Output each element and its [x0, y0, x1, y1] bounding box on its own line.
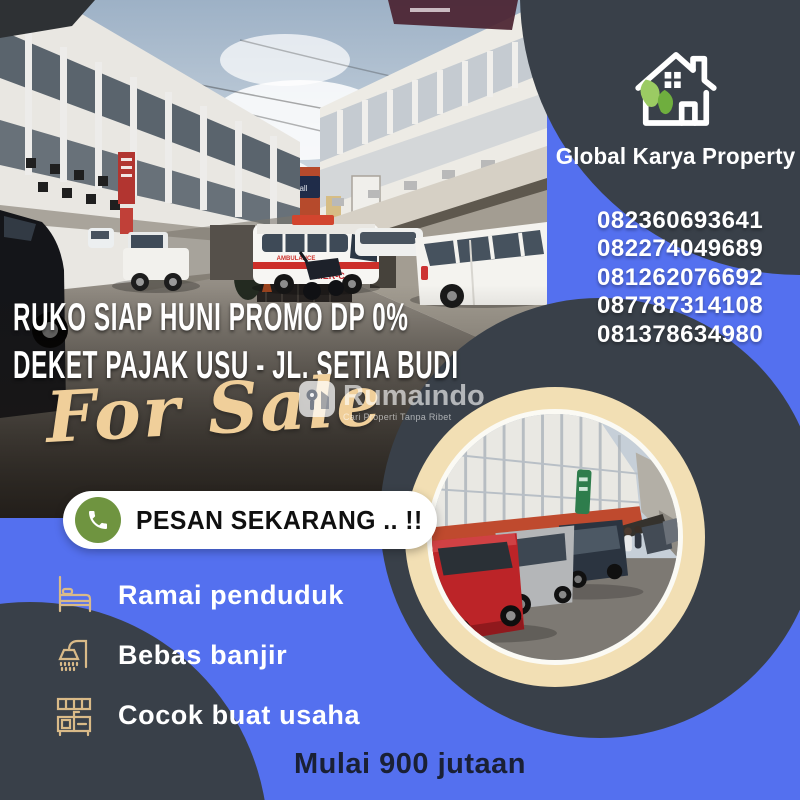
- shower-icon: [52, 633, 96, 677]
- phone-number: 081378634980: [597, 321, 763, 349]
- kitchen-icon: [52, 693, 96, 737]
- watermark-name: Rumaindo: [343, 381, 485, 411]
- ambulance-word-text: AMBULANCE: [277, 256, 316, 262]
- photo-ring: [405, 387, 705, 687]
- phone-icon-badge: [75, 497, 121, 543]
- headline-line1: RUKO SIAP HUNI PROMO DP 0%: [13, 294, 459, 342]
- phone-number: 087787314108: [597, 292, 763, 320]
- street-photo-circle: [427, 409, 683, 665]
- phone-number: 082360693641: [597, 207, 763, 235]
- bed-icon: [52, 573, 96, 617]
- brand-logo: Global Karya Property: [540, 36, 800, 170]
- phone-number: 081262076692: [597, 264, 763, 292]
- phone-icon: [86, 508, 110, 532]
- feature-label: Bebas banjir: [118, 640, 287, 671]
- watermark-home-key-icon: [299, 381, 335, 417]
- feature-row: Bebas banjir: [52, 632, 360, 678]
- feature-label: Cocok buat usaha: [118, 700, 360, 731]
- feature-row: Ramai penduduk: [52, 572, 360, 618]
- phone-list: 082360693641 082274049689 081262076692 0…: [597, 207, 763, 349]
- order-now-button[interactable]: PESAN SEKARANG .. !!: [63, 491, 437, 549]
- feature-label: Ramai penduduk: [118, 580, 344, 611]
- brand-name: Global Karya Property: [556, 143, 796, 170]
- flyer-canvas: Siba Mall: [0, 0, 800, 800]
- watermark: Rumaindo Cari Properti Tanpa Ribet: [299, 381, 485, 422]
- features-list: Ramai penduduk Bebas banjir Cocok buat u…: [52, 572, 360, 738]
- house-leaf-logo-icon: [618, 36, 734, 140]
- phone-number: 082274049689: [597, 235, 763, 263]
- feature-row: Cocok buat usaha: [52, 692, 360, 738]
- order-now-label: PESAN SEKARANG .. !!: [136, 505, 423, 536]
- circle-scene-illustration: [432, 414, 678, 660]
- price-text: Mulai 900 jutaan: [240, 748, 580, 781]
